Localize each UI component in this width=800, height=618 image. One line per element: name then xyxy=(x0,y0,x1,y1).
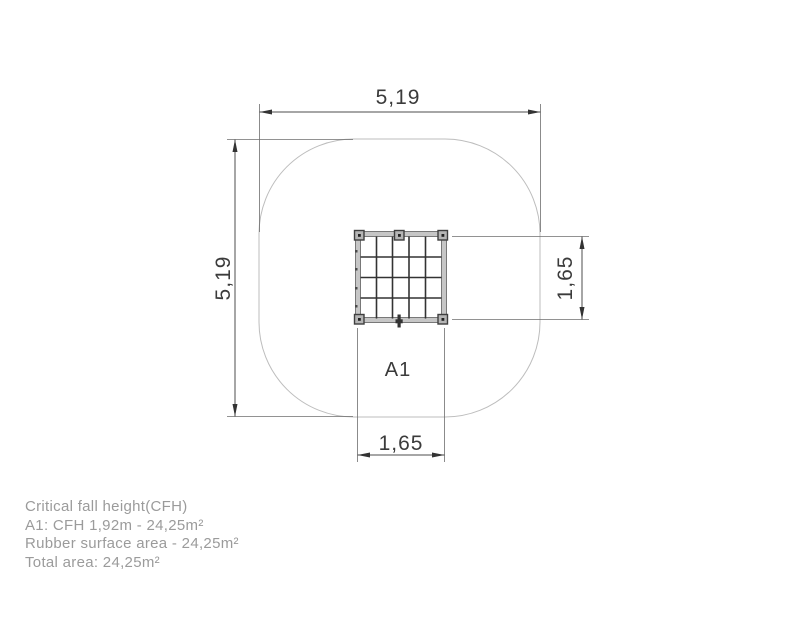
dimension-overall-width: 5,19 xyxy=(260,86,541,232)
net-post-bottom-left xyxy=(355,315,365,325)
area-label: A1 xyxy=(385,359,411,381)
attachment-tick xyxy=(355,268,358,271)
climbing-net xyxy=(355,231,448,328)
dimension-label-overall-height: 5,19 xyxy=(212,256,235,301)
dimension-label-item-height: 1,65 xyxy=(554,256,577,301)
net-post-top-mid xyxy=(395,231,405,241)
net-post-top-left xyxy=(355,231,365,241)
attachment-tick xyxy=(355,305,358,308)
note-line-rubber-surface: Rubber surface area - 24,25m² xyxy=(25,535,239,554)
note-line-critical-fall-height: Critical fall height(CFH) xyxy=(25,498,239,517)
notes-block: Critical fall height(CFH) A1: CFH 1,92m … xyxy=(25,498,239,572)
technical-drawing-page: 5,19 5,19 1,65 1,65 xyxy=(0,0,800,618)
note-line-total-area: Total area: 24,25m² xyxy=(25,554,239,573)
dimension-item-height: 1,65 xyxy=(452,237,589,320)
dimension-label-overall-width: 5,19 xyxy=(376,86,421,109)
net-post-top-right xyxy=(438,231,448,241)
attachment-tick xyxy=(355,287,358,290)
dimension-label-item-width: 1,65 xyxy=(379,432,424,455)
dimension-overall-height: 5,19 xyxy=(212,140,353,417)
attachment-tick xyxy=(355,250,358,253)
note-line-a1-cfh: A1: CFH 1,92m - 24,25m² xyxy=(25,517,239,536)
net-post-bottom-right xyxy=(438,315,448,325)
dimension-item-width: 1,65 xyxy=(358,328,445,462)
